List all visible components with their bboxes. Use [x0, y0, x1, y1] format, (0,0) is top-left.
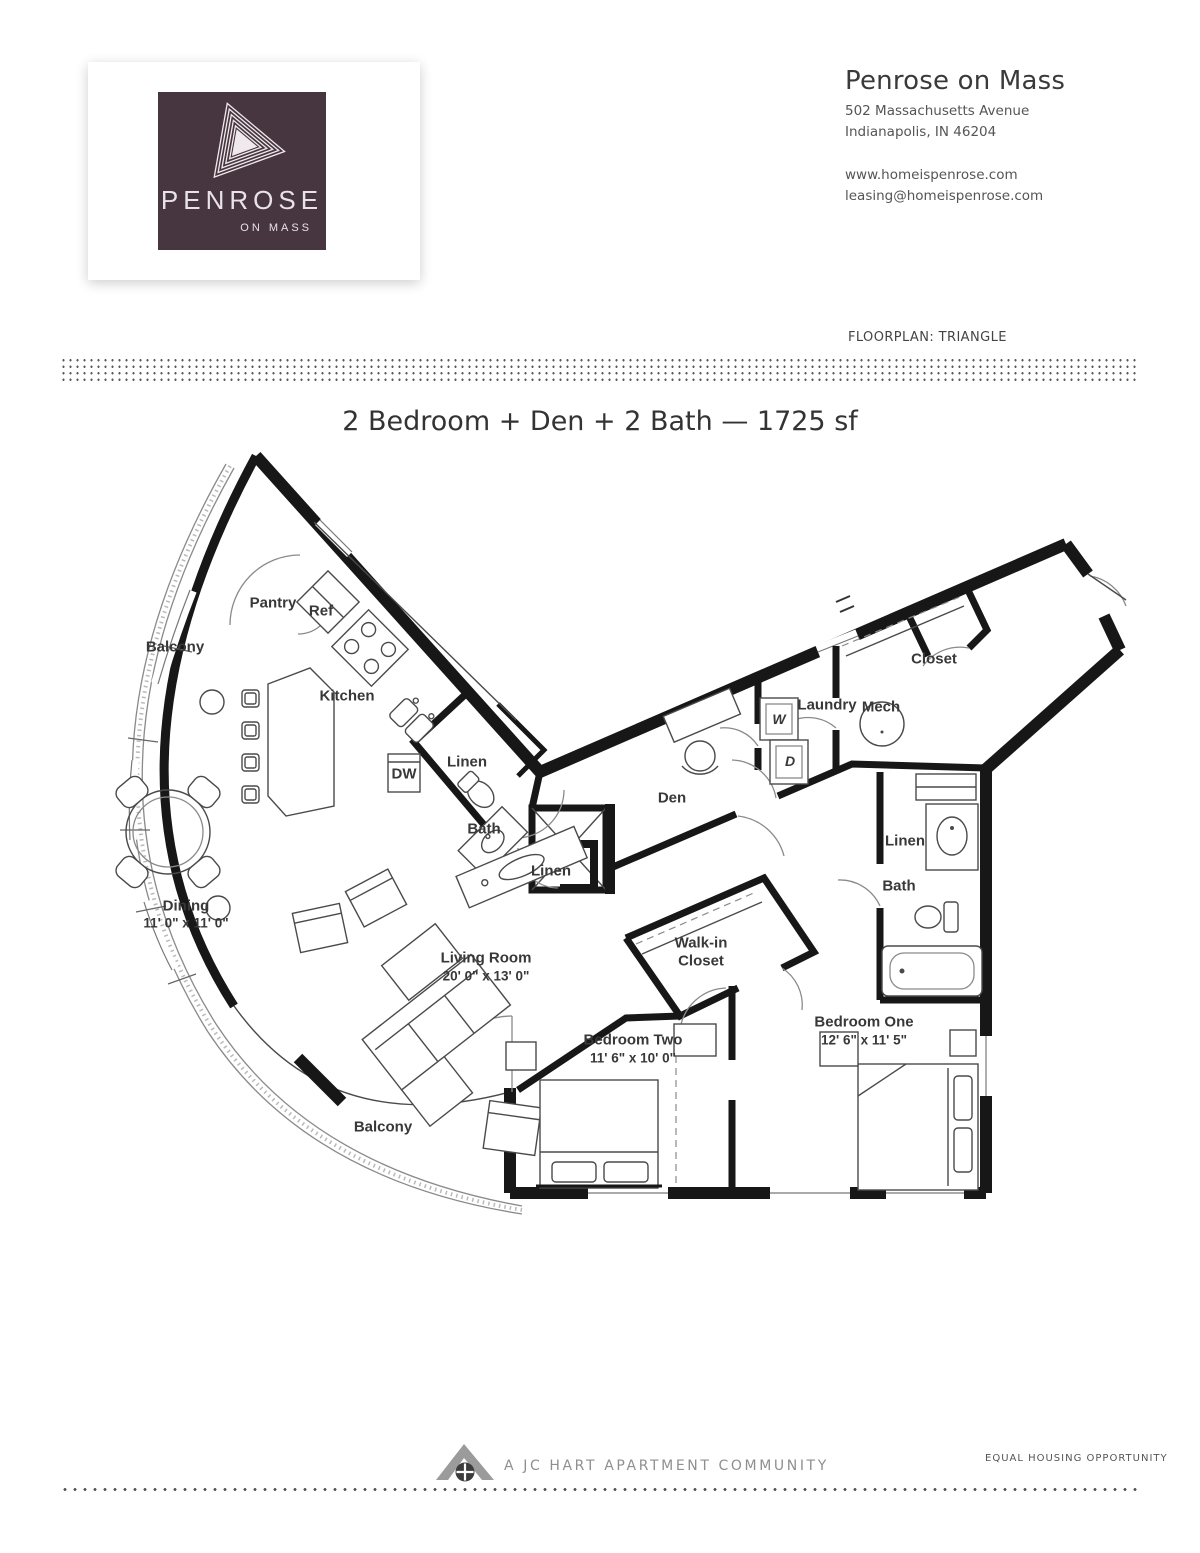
room-label-dw: DW — [392, 766, 417, 783]
room-dims-bedroom-one: 12' 6" x 11' 5" — [821, 1033, 907, 1048]
penrose-logo: PENROSE ON MASS — [158, 92, 326, 250]
logo-card: PENROSE ON MASS — [88, 62, 420, 280]
room-label-bedroom-two: Bedroom Two — [584, 1032, 683, 1049]
room-label-closet-entry: Closet — [911, 651, 957, 668]
jc-hart-house-icon — [436, 1436, 496, 1488]
property-name: Penrose on Mass — [845, 66, 1065, 96]
logo-sub-text: ON MASS — [240, 222, 312, 234]
floorplan-sheet: PENROSE ON MASS Penrose on Mass 502 Mass… — [0, 0, 1200, 1553]
address-line1: 502 Massachusetts Avenue — [845, 101, 1065, 122]
penrose-triangle-icon — [182, 96, 302, 192]
room-label-bedroom-one: Bedroom One — [814, 1014, 913, 1031]
room-label-linen-hall: Linen — [531, 863, 571, 880]
community-tagline: A JC HART APARTMENT COMMUNITY — [504, 1458, 829, 1474]
email-link[interactable]: leasing@homeispenrose.com — [845, 186, 1065, 207]
room-label-laundry: Laundry — [797, 697, 856, 714]
property-header: Penrose on Mass 502 Massachusetts Avenue… — [845, 66, 1065, 207]
room-label-pantry: Pantry — [250, 595, 297, 612]
room-label-walkin-2: Closet — [678, 953, 724, 970]
room-label-balcony-upper: Balcony — [146, 639, 204, 656]
room-label-walkin-1: Walk-in — [675, 935, 728, 952]
room-label-bath-two: Bath — [882, 878, 915, 895]
room-label-balcony-lower: Balcony — [354, 1119, 412, 1136]
equal-housing-label: EQUAL HOUSING OPPORTUNITY — [985, 1453, 1168, 1464]
dotted-divider-top — [60, 357, 1140, 382]
room-label-ref: Ref — [309, 603, 333, 620]
room-dims-living: 20' 0" x 13' 0" — [443, 969, 530, 984]
floorplan-svg — [70, 440, 1130, 1220]
plan-title: 2 Bedroom + Den + 2 Bath — 1725 sf — [0, 406, 1200, 437]
room-dims-dining: 11' 0" x 11' 0" — [143, 916, 228, 931]
dotted-divider-bottom — [60, 1486, 1140, 1493]
room-label-dryer: D — [785, 753, 795, 769]
room-label-linen-kitchen: Linen — [447, 754, 487, 771]
address-line2: Indianapolis, IN 46204 — [845, 122, 1065, 143]
room-label-living: Living Room — [441, 950, 532, 967]
website-link[interactable]: www.homeispenrose.com — [845, 165, 1065, 186]
room-label-den: Den — [658, 790, 686, 807]
floorplan-drawing: Balcony Pantry Ref Kitchen DW Linen Bath… — [70, 440, 1130, 1220]
room-label-mech: Mech — [862, 699, 900, 716]
floorplan-tag: FLOORPLAN: TRIANGLE — [848, 330, 1007, 345]
room-label-linen-bath: Linen — [885, 833, 925, 850]
room-label-kitchen: Kitchen — [319, 688, 374, 705]
room-label-bath-main: Bath — [467, 821, 500, 838]
room-label-washer: W — [772, 711, 785, 727]
room-label-dining: Dining — [163, 898, 210, 915]
logo-brand-text: PENROSE — [158, 185, 326, 216]
room-dims-bedroom-two: 11' 6" x 10' 0" — [590, 1051, 676, 1066]
